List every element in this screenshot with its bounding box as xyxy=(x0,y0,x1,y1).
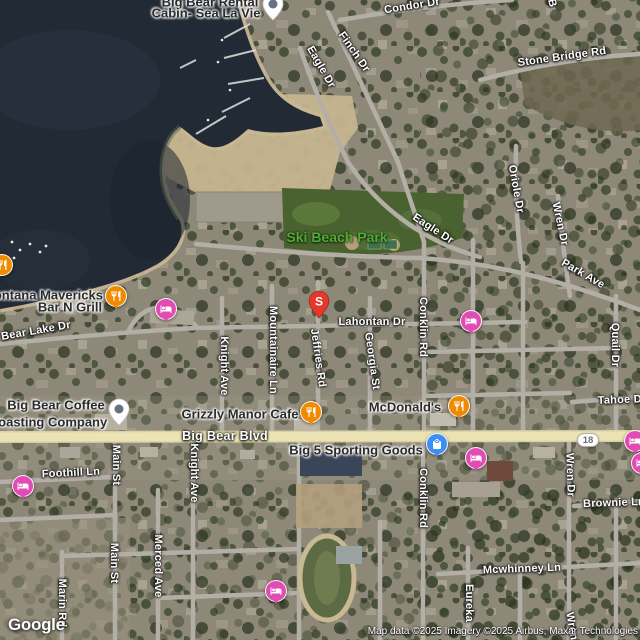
poi-label-roasting-company[interactable]: Roasting Company xyxy=(0,415,107,430)
shopping-marker[interactable] xyxy=(426,433,448,455)
lodging-marker[interactable] xyxy=(155,298,177,320)
poi-label-big-bear-coffee[interactable]: Big Bear Coffee xyxy=(7,398,105,413)
svg-text:S: S xyxy=(315,295,323,309)
marker-tail xyxy=(472,465,480,471)
map-canvas[interactable]: Condor DrFinch DrEagle DrBStone Bridge R… xyxy=(0,0,640,640)
marker-tail xyxy=(272,598,280,604)
poi-label-ski-beach-park[interactable]: Ski Beach Park xyxy=(286,229,387,245)
map-attribution: Map data ©2025 Imagery ©2025 Airbus, Max… xyxy=(368,626,638,637)
road-label-eureka: Eureka xyxy=(463,584,475,622)
lodging-marker[interactable] xyxy=(631,452,640,474)
poi-label-bar-n-grill[interactable]: Bar N Grill xyxy=(38,300,102,315)
road-label-knight-ave: Knight Ave xyxy=(188,443,200,502)
place-pin[interactable] xyxy=(108,398,130,431)
restaurant-icon xyxy=(305,406,317,418)
bed-icon xyxy=(470,452,482,464)
bed-icon xyxy=(636,457,640,469)
place-pin[interactable] xyxy=(262,0,284,26)
restaurant-icon xyxy=(0,259,8,271)
search-result-pin[interactable]: S xyxy=(308,290,330,324)
restaurant-marker[interactable] xyxy=(300,401,322,423)
road-label-knight-ave: Knight Ave xyxy=(218,336,230,395)
lodging-marker[interactable] xyxy=(460,310,482,332)
road-label-mountainaire-ln: Mountainaire Ln xyxy=(267,306,279,394)
marker-tail xyxy=(307,419,315,425)
poi-label-cabin-sea-la-vie[interactable]: Cabin- Sea La Vie xyxy=(152,6,261,21)
road-label-quail-dr: Quail Dr xyxy=(609,323,621,367)
bed-icon xyxy=(160,303,172,315)
road-label-tahoe-dr: Tahoe Dr xyxy=(598,393,640,407)
poi-label-mcdonald-s[interactable]: McDonald's xyxy=(369,400,441,415)
road-label-merced-ave: Merced Ave xyxy=(152,535,164,598)
road-label-conklin-rd: Conklin Rd xyxy=(417,297,429,357)
markers-layer: S xyxy=(0,0,640,640)
restaurant-icon xyxy=(453,400,465,412)
restaurant-marker[interactable] xyxy=(448,395,470,417)
bed-icon xyxy=(270,585,282,597)
restaurant-marker[interactable] xyxy=(0,254,13,276)
restaurant-icon xyxy=(110,290,122,302)
marker-tail xyxy=(467,328,475,334)
bed-icon xyxy=(17,480,29,492)
road-label-conklin-rd: Conklin Rd xyxy=(417,468,429,528)
bed-icon xyxy=(465,315,477,327)
marker-tail xyxy=(19,493,27,499)
google-logo[interactable]: Google xyxy=(8,615,65,635)
lodging-marker[interactable] xyxy=(624,430,640,452)
road-label-main-st: Main St xyxy=(108,543,120,584)
route-shield-18: 18 xyxy=(577,433,599,447)
poi-label-big-5-sporting-goods[interactable]: Big 5 Sporting Goods xyxy=(289,443,423,458)
marker-tail xyxy=(455,413,463,419)
lodging-marker[interactable] xyxy=(265,580,287,602)
shopping-bag-icon xyxy=(431,438,443,450)
marker-tail xyxy=(162,316,170,322)
road-label-brownie-ln: Brownie Ln xyxy=(583,496,640,510)
bed-icon xyxy=(629,435,640,447)
road-label-wren-dr: Wren Dr xyxy=(563,453,577,497)
marker-tail xyxy=(433,451,441,457)
poi-label-grizzly-manor-cafe[interactable]: Grizzly Manor Cafe xyxy=(181,407,298,422)
road-label-big-bear-blvd: Big Bear Blvd xyxy=(182,429,268,443)
lodging-marker[interactable] xyxy=(465,447,487,469)
route-shield-label: 18 xyxy=(583,435,594,446)
road-label-main-st: Main St xyxy=(110,445,122,486)
marker-tail xyxy=(112,303,120,309)
lodging-marker[interactable] xyxy=(12,475,34,497)
restaurant-marker[interactable] xyxy=(105,285,127,307)
road-label-lahontan-dr: Lahontan Dr xyxy=(339,316,406,328)
